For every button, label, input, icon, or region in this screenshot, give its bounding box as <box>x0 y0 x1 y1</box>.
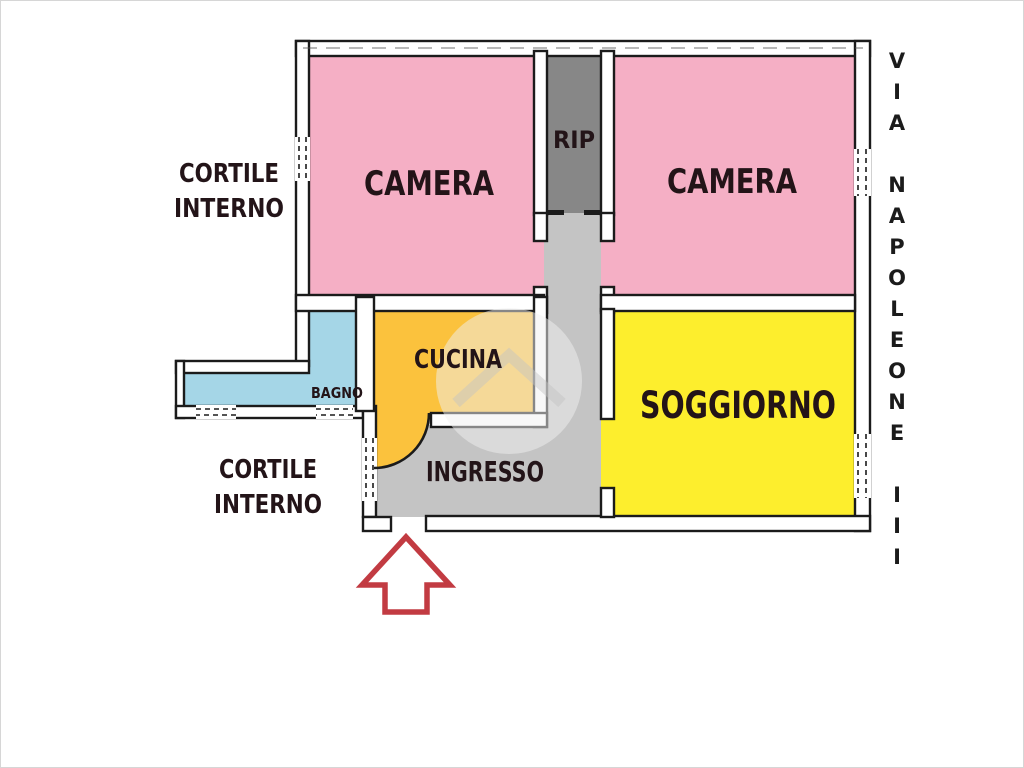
wall-segment <box>601 309 614 419</box>
courtyard-bottom-line1: CORTILE <box>219 455 317 485</box>
room-label-rip: RIP <box>553 126 595 154</box>
courtyard-label-bottom: CORTILE INTERNO <box>214 455 322 520</box>
window-marker <box>362 438 377 501</box>
street-name-label: VIA NAPOLEONE III <box>875 49 909 549</box>
courtyard-bottom-line2: INTERNO <box>214 490 322 520</box>
room-label-camera-left: CAMERA <box>364 164 495 204</box>
floor-plan-svg: CAMERA CAMERA RIP BAGNO CUCINA INGRESSO … <box>1 1 1024 768</box>
wall-segment <box>363 517 391 531</box>
watermark-tint <box>436 308 582 454</box>
window-marker <box>295 137 310 181</box>
wall-segment <box>601 213 614 241</box>
window-marker <box>854 434 871 498</box>
room-label-cucina: CUCINA <box>414 345 502 375</box>
wall-segment <box>601 295 855 311</box>
rip-threshold-dash <box>547 210 564 215</box>
window-marker <box>196 405 236 419</box>
room-label-soggiorno: SOGGIORNO <box>640 384 836 427</box>
wall-segment <box>534 213 547 241</box>
room-label-ingresso: INGRESSO <box>426 455 544 488</box>
room-label-bagno: BAGNO <box>311 384 363 402</box>
wall-segment <box>296 41 309 366</box>
wall-segment <box>176 361 309 373</box>
wall-segment <box>534 51 547 215</box>
entrance-arrow-icon <box>362 537 450 612</box>
floor-plan-page: CAMERA CAMERA RIP BAGNO CUCINA INGRESSO … <box>0 0 1024 768</box>
room-label-camera-right: CAMERA <box>667 162 798 202</box>
window-marker <box>316 405 353 419</box>
courtyard-top-line1: CORTILE <box>179 159 279 189</box>
courtyard-top-line2: INTERNO <box>174 194 284 224</box>
wall-segment <box>426 516 870 531</box>
courtyard-label-top: CORTILE INTERNO <box>174 159 284 224</box>
rip-threshold-dash <box>584 210 601 215</box>
window-marker <box>854 149 871 196</box>
watermark-logo <box>436 308 582 454</box>
wall-segment <box>601 488 614 517</box>
wall-segment <box>601 51 614 215</box>
